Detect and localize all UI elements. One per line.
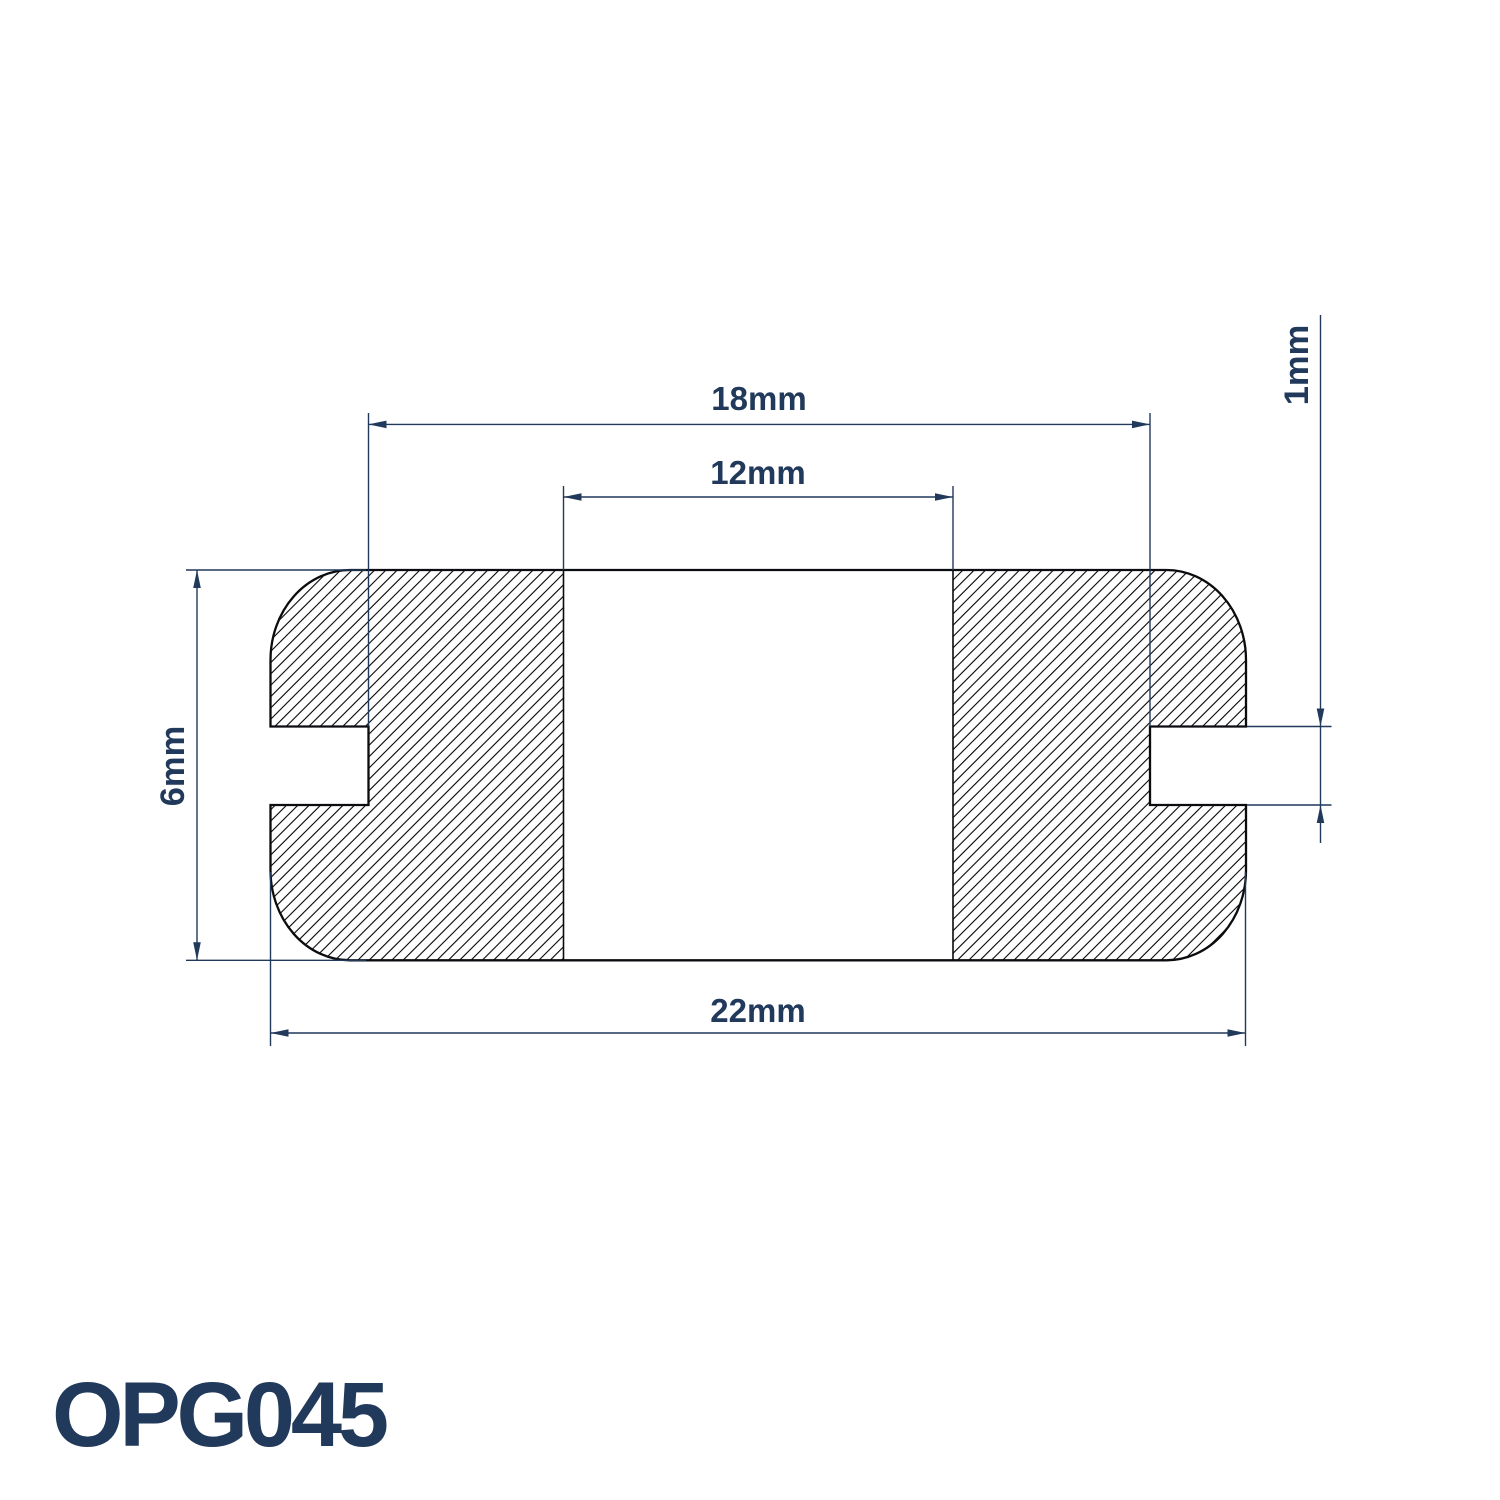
svg-text:OPG045: OPG045	[52, 1364, 387, 1466]
svg-text:1mm: 1mm	[1278, 325, 1316, 406]
svg-text:6mm: 6mm	[154, 726, 192, 807]
svg-text:12mm: 12mm	[710, 454, 805, 491]
svg-text:22mm: 22mm	[710, 992, 805, 1029]
svg-text:18mm: 18mm	[711, 380, 806, 417]
